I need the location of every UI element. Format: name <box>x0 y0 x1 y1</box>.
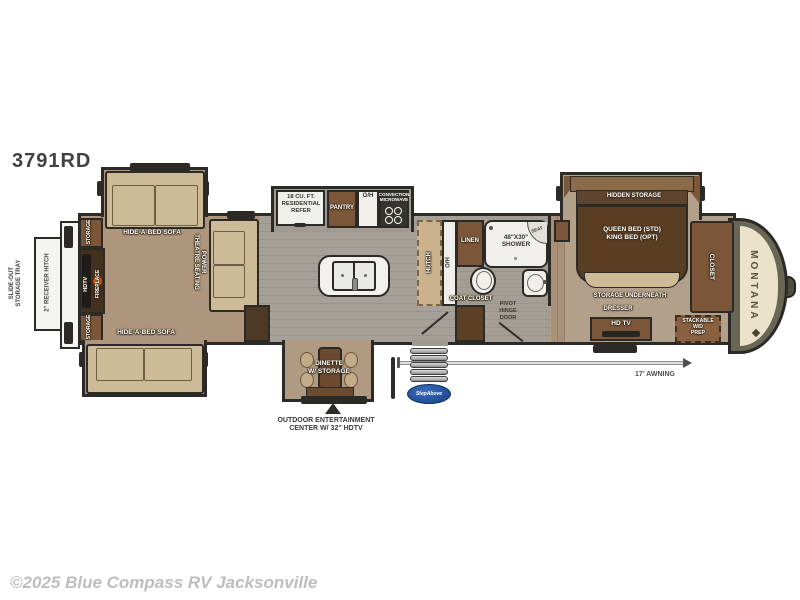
fireplace-label: FIREPLACE <box>96 259 102 309</box>
brand-label: MONTANA <box>747 243 759 329</box>
hidden-storage-label: HIDDEN STORAGE <box>582 193 686 200</box>
bedroom-tv-label: HD TV <box>592 320 650 328</box>
floorplan-canvas: 3791RD 2" RECEIVER HITCH SLIDE-OUT STORA… <box>0 0 800 600</box>
microwave-label: CONVECTION MICROWAVE <box>377 192 411 203</box>
shower-head-icon <box>489 226 493 230</box>
slide-latch <box>203 352 208 367</box>
entry-grab-handle <box>391 357 395 399</box>
bedroom-tv-screen <box>602 331 640 337</box>
nightstand-left <box>554 220 570 242</box>
sofa-slide-storage-bar <box>130 163 190 172</box>
floorplan-title: 3791RD <box>12 150 91 173</box>
awning-arrow-icon <box>683 358 692 368</box>
entry-step <box>410 369 448 375</box>
bath-bedroom-wall <box>548 216 551 306</box>
entry-step <box>410 376 448 382</box>
entry-step <box>410 362 448 368</box>
step-above-logo-text: StepAbove <box>416 391 442 397</box>
sofa-bottom-cushion-right <box>144 348 192 381</box>
theatre-cushion-bottom <box>213 265 245 298</box>
storage-top-label: STORAGE <box>87 216 93 248</box>
bath-faucet-icon <box>543 280 547 284</box>
theatre-cushion-top <box>213 231 245 265</box>
overhead-cabinet-mark <box>227 211 255 219</box>
sofa-bottom-cushion-left <box>96 348 144 381</box>
rear-hatch-top <box>64 226 73 248</box>
storage-bottom-label: STORAGE <box>87 311 93 343</box>
hutch-label: HUTCH <box>426 243 433 283</box>
bed-label: QUEEN BED (STD) KING BED (OPT) <box>570 226 694 241</box>
entry-step <box>410 348 448 354</box>
receiver-hitch-label: 2" RECEIVER HITCH <box>44 241 51 325</box>
sink-drain-left <box>341 274 344 277</box>
bed-foot-blanket <box>584 272 680 288</box>
slide-latch <box>204 181 209 196</box>
slide-out-tray-label: SLIDE-OUT STORAGE TRAY <box>9 247 23 319</box>
theatre-label: POWER THEATRE SEATING <box>192 221 206 303</box>
sofa-top-cushion-left <box>112 185 155 226</box>
copyright-text: ©2025 Blue Compass RV Jacksonville <box>10 573 317 593</box>
end-cabinet <box>244 305 270 342</box>
slide-latch <box>79 352 84 367</box>
slide-latch <box>700 186 705 201</box>
stove-burner-icon <box>385 207 403 223</box>
entry-step <box>410 355 448 361</box>
bath-sink-basin <box>527 274 544 292</box>
dresser-label: DRESSER <box>580 306 656 313</box>
toilet-bowl <box>476 271 492 290</box>
hutch-overhead-label: O/H <box>445 249 452 277</box>
pivot-door-label: PIVOT HINGE DOOR <box>488 301 528 322</box>
hdtv-label: HDTV <box>83 269 89 299</box>
pantry-label: PANTRY <box>312 205 372 212</box>
shower-drain-icon <box>514 257 517 260</box>
awning-label: 17' AWNING <box>607 371 703 379</box>
sofa-top-cushion-right <box>155 185 198 226</box>
outdoor-entertainment-label: OUTDOOR ENTERTAINMENT CENTER W/ 32" HDTV <box>240 417 412 434</box>
closet-label: CLOSET <box>707 243 715 291</box>
dinette-label: DINETTE W/ STORAGE <box>290 360 368 375</box>
sink-faucet-icon <box>352 278 358 291</box>
exterior-hatch-bar <box>593 345 637 353</box>
slide-latch <box>556 186 561 201</box>
entry-door-opening <box>412 339 448 346</box>
slide-latch <box>97 181 102 196</box>
coat-closet <box>455 305 485 342</box>
step-above-logo: StepAbove <box>407 384 451 404</box>
sink-drain-right <box>364 274 367 277</box>
washer-dryer-label: STACKABLE W/D PREP <box>674 318 722 337</box>
storage-underneath-label: STORAGE UNDERNEATH <box>568 293 692 300</box>
arrow-up-icon <box>325 403 341 414</box>
awning-end-tick <box>397 357 400 368</box>
sofa-bottom-label: HIDE-A-BED SOFA <box>88 329 204 337</box>
rear-hatch-bottom <box>64 322 73 344</box>
shower-label: 48"X30" SHOWER <box>486 234 546 249</box>
refrigerator-handle <box>294 223 306 227</box>
